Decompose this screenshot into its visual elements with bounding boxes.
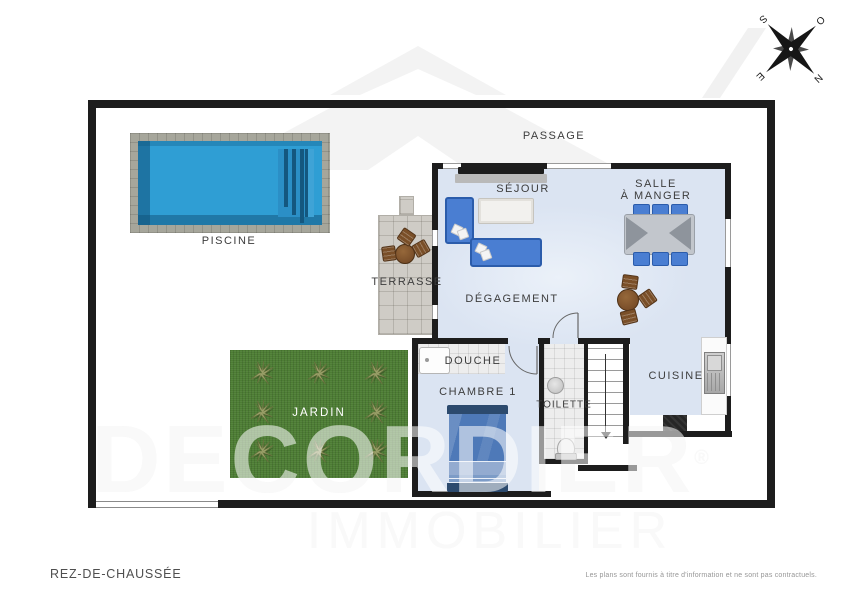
plot-gate-fence [96, 501, 218, 508]
stairwell-wall-bottom [578, 465, 637, 471]
window [547, 163, 611, 169]
label-passage: PASSAGE [523, 130, 585, 142]
dining-chair [652, 252, 669, 266]
compass-west-label: O [813, 13, 826, 27]
terrace-unit [399, 196, 414, 215]
label-douche: DOUCHE [445, 355, 502, 367]
staircase [588, 344, 623, 465]
sofa-vertical [445, 197, 474, 244]
sink [547, 377, 564, 394]
plant-icon [305, 437, 333, 465]
plant-icon [248, 398, 276, 426]
coffee-table [478, 198, 534, 224]
compass-south-label: S [756, 12, 769, 25]
pool-water [138, 141, 322, 225]
fridge [704, 352, 725, 394]
label-cuisine: CUISINE [648, 370, 703, 382]
disclaimer-text: Les plans sont fournis à titre d'informa… [585, 572, 817, 579]
stairs-down-arrow [605, 354, 606, 432]
bistro-table [617, 289, 639, 311]
label-piscine: PISCINE [202, 235, 257, 247]
plot-wall-top [88, 100, 775, 108]
compass-rose-icon: N S E O [745, 3, 837, 95]
label-sejour: SÉJOUR [496, 183, 550, 195]
toilet-base [555, 453, 577, 460]
label-jardin: JARDIN [292, 407, 346, 419]
tv [458, 167, 544, 174]
compass-east-label: E [754, 70, 767, 83]
plant-icon [248, 359, 276, 387]
south-wall-a [412, 338, 508, 344]
window [725, 219, 731, 267]
pool-steps [278, 149, 314, 217]
plant-icon [248, 437, 276, 465]
sofa-horizontal [470, 238, 542, 267]
compass-north-label: N [812, 71, 825, 84]
stove [663, 415, 687, 431]
label-chambre1: CHAMBRE 1 [439, 386, 517, 398]
label-degagement: DÉGAGEMENT [465, 293, 558, 305]
plot-wall-right [767, 100, 775, 508]
label-toilette: TOILETTE [536, 400, 592, 411]
floor-title: REZ-DE-CHAUSSÉE [50, 567, 181, 581]
watermark-tagline: IMMOBILIER [260, 505, 720, 557]
plant-icon [362, 359, 390, 387]
tv-console [455, 174, 547, 183]
plot-wall-left [88, 100, 96, 508]
stairs-wall-right [623, 344, 629, 444]
double-bed [447, 405, 508, 492]
label-salle-line1: SALLE [621, 178, 692, 190]
kitchen-wall-bottom [626, 431, 732, 437]
plant-icon [362, 437, 390, 465]
bedroom-wall-left [412, 338, 418, 497]
swimming-pool [130, 133, 330, 233]
watermark-registered-icon: ® [694, 447, 709, 469]
dining-table-ends [624, 214, 693, 253]
terrace-chair [381, 245, 397, 262]
label-terrasse: TERRASSE [371, 276, 442, 288]
label-salle-line2: À MANGER [621, 190, 692, 202]
plant-icon [305, 359, 333, 387]
dining-chair [671, 252, 688, 266]
dining-chair [633, 252, 650, 266]
plot-wall-bottom [218, 500, 775, 508]
window [432, 230, 438, 246]
floor-plan-canvas: DECORDIER® IMMOBILIER PISCINE TERRASSE [0, 0, 848, 600]
plant-icon [362, 398, 390, 426]
window [432, 305, 438, 319]
bistro-chair [621, 274, 639, 290]
label-salle-a-manger: SALLE À MANGER [621, 178, 692, 202]
